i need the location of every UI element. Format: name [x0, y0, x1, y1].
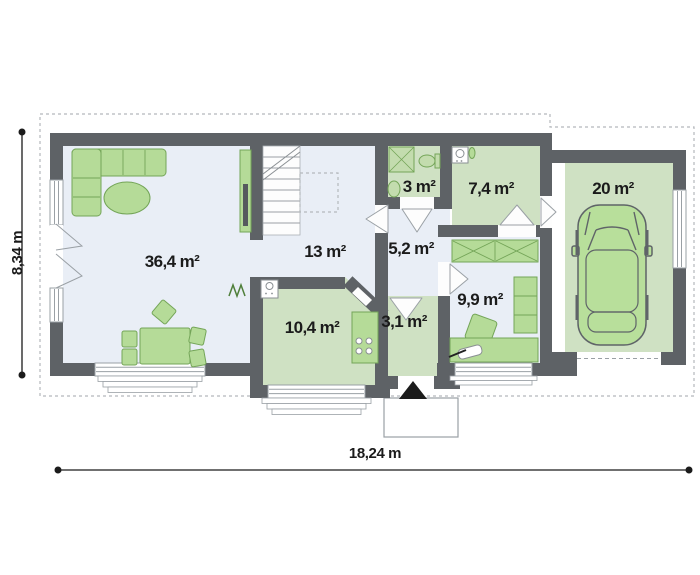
- stove-burner: [356, 348, 362, 354]
- living-terrace-window: [95, 363, 205, 376]
- kitchen-step: [272, 409, 361, 415]
- tv-icon: [243, 184, 248, 226]
- coffee-table: [104, 182, 150, 214]
- room-label-kitchen: 10,4 m²: [285, 318, 340, 337]
- bedroom-window-sill: [450, 376, 537, 381]
- terrace-step: [108, 387, 192, 393]
- dining-table: [140, 328, 190, 364]
- room-label-garage: 20 m²: [592, 179, 634, 198]
- height-dimension-label: 8,34 m: [9, 231, 26, 275]
- living-window-left-2: [50, 288, 63, 322]
- chair: [122, 349, 137, 365]
- room-label-living: 36,4 m²: [145, 252, 200, 271]
- terrace-step: [98, 376, 202, 382]
- kitchen-counter: [352, 312, 378, 363]
- terrace-step: [103, 382, 197, 388]
- stove-burner: [366, 348, 372, 354]
- dimension-height: 8,34 m: [9, 129, 26, 379]
- car-icon: [572, 205, 652, 345]
- bedroom-window: [455, 363, 532, 376]
- living-corner-door-opening: [50, 225, 63, 288]
- stove-burner: [356, 338, 362, 344]
- width-dimension-label: 18,24 m: [349, 445, 401, 462]
- garage-window: [673, 190, 686, 268]
- living-window-left-1: [50, 180, 63, 225]
- utility-plant-icon: [469, 148, 475, 159]
- floor-plan-image: 8,34 m 18,24 m 36,4 m² 13 m² 3 m² 7,4 m²…: [0, 0, 700, 575]
- toilet-icon: [419, 155, 435, 167]
- sofa: [72, 149, 101, 216]
- room-label-corridor: 5,2 m²: [388, 239, 434, 258]
- floor-plan-svg: 8,34 m 18,24 m 36,4 m² 13 m² 3 m² 7,4 m²…: [0, 0, 700, 575]
- dimension-width: 18,24 m: [55, 445, 693, 474]
- chair: [188, 327, 206, 346]
- room-label-bedroom: 9,9 m²: [457, 290, 503, 309]
- chair: [122, 331, 137, 347]
- stove-burner: [366, 338, 372, 344]
- sink-icon: [388, 181, 400, 197]
- kitchen-window: [268, 385, 365, 398]
- toilet-tank-icon: [435, 154, 440, 168]
- kitchen-step: [267, 404, 366, 410]
- room-label-utility: 7,4 m²: [468, 179, 514, 198]
- room-label-bathroom: 3 m²: [403, 177, 436, 196]
- bedroom-window-sill: [455, 381, 532, 386]
- desk: [514, 277, 537, 333]
- kitchen-step: [262, 398, 371, 404]
- room-label-hall: 13 m²: [304, 242, 346, 261]
- chair: [189, 349, 207, 367]
- room-label-vestibule: 3,1 m²: [381, 312, 427, 331]
- entrance-porch: [384, 398, 458, 437]
